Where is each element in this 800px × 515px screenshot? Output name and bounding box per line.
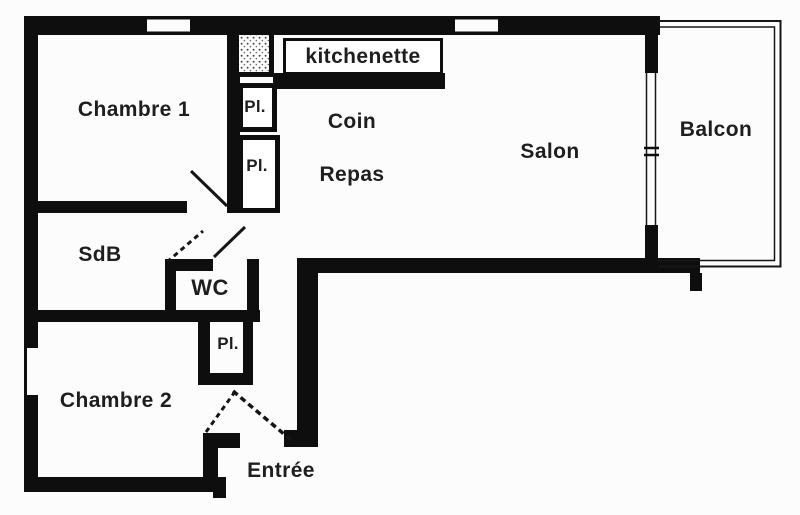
wall-bottom-chambre2 — [24, 477, 218, 492]
door-leaf-sdb — [167, 231, 203, 262]
wall-sdb-chambre2-divider — [24, 310, 260, 322]
wall-salon-bottom-stub — [690, 273, 702, 291]
wall-corridor-vertical — [297, 258, 318, 447]
room-label-chambre1: Chambre 1 — [78, 98, 190, 122]
wall-entry-step — [213, 477, 226, 498]
door-leaf-chambre2 — [206, 393, 234, 432]
room-label-wc: WC — [191, 275, 228, 301]
shower-fixture-box — [237, 33, 272, 75]
wall-kitchenette-counter — [273, 73, 445, 89]
room-label-sdb: SdB — [78, 243, 121, 267]
wall-top-left-segment — [24, 16, 147, 35]
wall-balcon-divider-top — [645, 16, 658, 73]
wall-wc-left — [165, 259, 176, 310]
closet-label-top2: Pl. — [246, 156, 267, 176]
wall-left-upper — [24, 16, 38, 348]
room-label-coin: Coin — [328, 110, 376, 134]
room-label-chambre2: Chambre 2 — [60, 389, 172, 413]
wall-salon-bottom — [297, 258, 700, 273]
door-leaf-entree — [233, 391, 291, 440]
room-label-repas: Repas — [319, 163, 384, 187]
window-chambre2-outer-frame — [24, 348, 27, 395]
balcon-outline-inner — [658, 27, 775, 261]
wall-wc-right — [247, 259, 259, 322]
balcon-outline-outer — [658, 21, 781, 267]
door-leaf-wc — [214, 227, 245, 257]
wall-hall-closet-bottom — [198, 373, 253, 385]
wall-top-right-segment — [498, 16, 660, 35]
closet-label-hall: Pl. — [217, 334, 238, 354]
window-chambre1-inner-frame — [147, 32, 190, 36]
closet-label-top1: Pl. — [244, 97, 265, 117]
door-leaf-chambre1 — [191, 171, 227, 206]
window-salon-inner-frame — [455, 32, 498, 36]
wall-balcon-divider-bottom — [645, 225, 658, 273]
floor-plan: Chambre 1 kitchenette Coin Repas Salon B… — [0, 0, 800, 515]
room-label-entree: Entrée — [247, 459, 315, 483]
wall-entry-stub — [203, 433, 240, 448]
room-label-salon: Salon — [520, 140, 579, 164]
wall-chambre1-sdb-divider — [24, 201, 187, 213]
room-label-balcon: Balcon — [680, 118, 752, 142]
room-label-kitchenette: kitchenette — [305, 45, 420, 69]
window-salon-outer-frame — [455, 16, 498, 20]
window-chambre1-outer-frame — [147, 16, 190, 20]
